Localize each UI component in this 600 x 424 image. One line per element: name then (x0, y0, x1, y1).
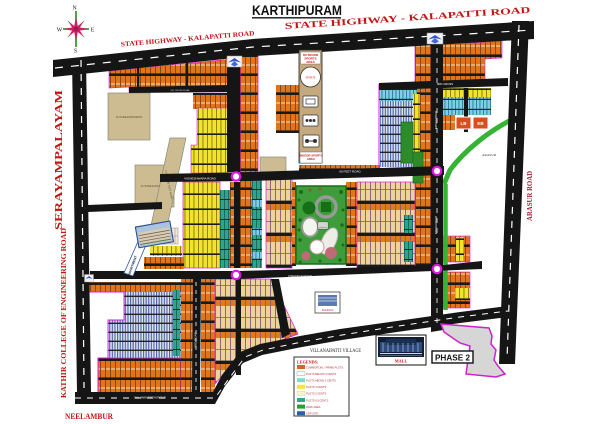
svg-text:NEELAMBUR: NEELAMBUR (65, 411, 114, 421)
svg-text:ODP SITE: ODP SITE (306, 411, 318, 415)
svg-text:KOVAI ROAD: KOVAI ROAD (434, 215, 438, 234)
svg-text:VIGNESHWARA ROAD: VIGNESHWARA ROAD (184, 177, 217, 181)
svg-text:PARK AREA: PARK AREA (306, 405, 321, 409)
svg-text:PLOTS 6.5 CENTS: PLOTS 6.5 CENTS (306, 398, 329, 402)
svg-text:FUTURE EXPANSION: FUTURE EXPANSION (116, 115, 142, 119)
svg-text:KARTHIPURAM: KARTHIPURAM (252, 3, 342, 18)
svg-text:ARASUR: ARASUR (482, 153, 497, 157)
svg-text:VINAYAGA ROAD: VINAYAGA ROAD (288, 274, 313, 278)
svg-text:MALL: MALL (395, 359, 408, 364)
svg-text:AREA: AREA (306, 60, 315, 64)
svg-text:VILLANAIPATTI VILLAGE: VILLANAIPATTI VILLAGE (310, 349, 361, 354)
svg-text:PHASE 2: PHASE 2 (435, 354, 470, 363)
svg-text:1ST CROSS ROAD: 1ST CROSS ROAD (170, 89, 190, 92)
svg-text:PLOTS ABOVE 3 CENTS: PLOTS ABOVE 3 CENTS (306, 379, 336, 383)
svg-text:E: E (91, 28, 95, 34)
svg-text:2ND ROAD: 2ND ROAD (194, 331, 198, 347)
svg-text:S: S (74, 49, 77, 55)
svg-text:PLOTS 4 CENTS: PLOTS 4 CENTS (306, 385, 326, 389)
svg-text:AREA: AREA (307, 157, 315, 161)
svg-text:KATHIR COLLEGE OF ENGINEERING: KATHIR COLLEGE OF ENGINEERING ROAD (60, 228, 68, 398)
svg-text:EB: EB (477, 121, 484, 126)
svg-text:PLOTS 5 CENTS: PLOTS 5 CENTS (306, 392, 326, 396)
svg-text:3RD CROSS: 3RD CROSS (437, 82, 453, 86)
svg-text:VILLANKURICHI ROAD: VILLANKURICHI ROAD (134, 395, 167, 399)
svg-text:SERAYAMPALAYAM: SERAYAMPALAYAM (54, 89, 65, 230)
svg-text:KOVAI ROAD: KOVAI ROAD (434, 110, 438, 129)
svg-text:N: N (72, 6, 77, 12)
svg-text:60 FEET ROAD: 60 FEET ROAD (339, 170, 361, 174)
svg-text:COMMERCIAL / PRIME PLOTS: COMMERCIAL / PRIME PLOTS (306, 365, 343, 369)
svg-text:SCHOOL: SCHOOL (322, 308, 334, 312)
svg-text:PLOTS BELOW 3 CENTS: PLOTS BELOW 3 CENTS (306, 372, 337, 376)
svg-text:ARASUR ROAD: ARASUR ROAD (526, 171, 534, 221)
svg-text:W: W (57, 28, 63, 34)
svg-text:LB: LB (461, 121, 468, 126)
svg-text:LEGENDS:: LEGENDS: (297, 360, 319, 365)
svg-text:SPORTS: SPORTS (306, 77, 316, 80)
